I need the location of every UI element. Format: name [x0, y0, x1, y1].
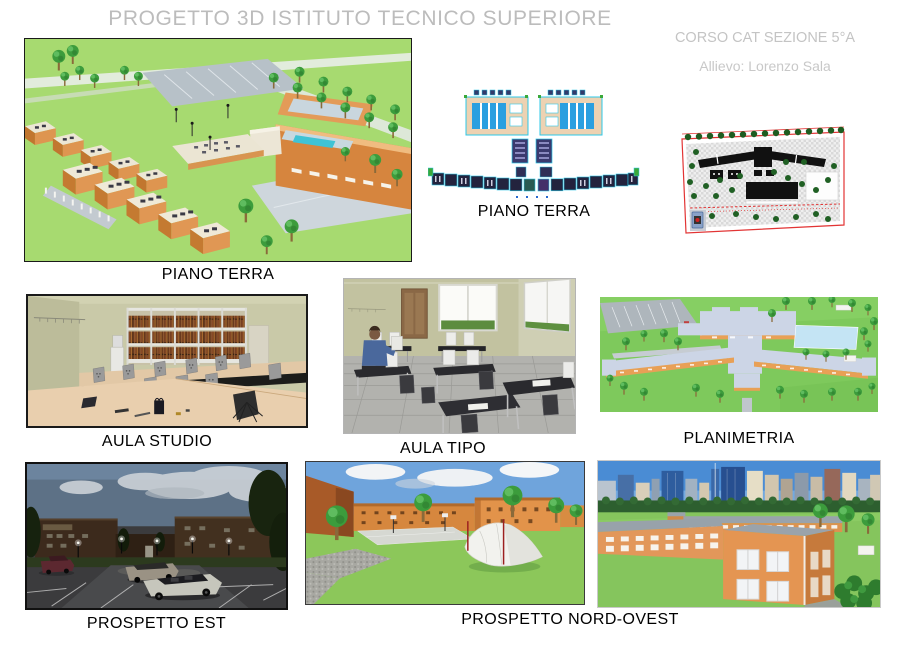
aula-studio-render [26, 294, 308, 428]
course-label: CORSO CAT SEZIONE 5°A [655, 30, 875, 46]
site-plan-drawing [676, 122, 850, 240]
site-plan [676, 122, 850, 240]
caption-piano-terra-cad: PIANO TERRA [428, 203, 640, 221]
prospetto-nord-ovest-courtyard-render [305, 461, 585, 605]
aula-studio-drawing [28, 296, 306, 426]
caption-aula-tipo: AULA TIPO [343, 440, 543, 458]
back-window [439, 285, 497, 330]
prospetto-est-drawing [27, 464, 286, 608]
caption-prospetto-est: PROSPETTO EST [25, 615, 288, 633]
prospetto-est-render [25, 462, 288, 610]
piano-terra-3d-render [24, 38, 412, 262]
piano-terra-3d-drawing [25, 39, 411, 261]
courtyard-drawing [306, 462, 584, 604]
caption-aula-studio: AULA STUDIO [26, 433, 288, 451]
page-title: PROGETTO 3D ISTITUTO TECNICO SUPERIORE [90, 7, 630, 31]
cad-plan-drawing [428, 84, 640, 202]
right-window [524, 279, 570, 332]
planimetria-render [600, 297, 878, 412]
sports-court [794, 325, 858, 349]
caption-prospetto-nord-ovest: PROSPETTO NORD-OVEST [440, 611, 700, 629]
aula-tipo-drawing [344, 279, 575, 433]
planimetria-drawing [600, 297, 878, 412]
caption-planimetria: PLANIMETRIA [600, 430, 878, 448]
building-drawing [598, 461, 880, 607]
bookshelf [127, 308, 247, 365]
aula-tipo-render [343, 278, 576, 434]
piano-terra-cad-plan [428, 84, 640, 202]
entrance-symbol [690, 210, 706, 231]
student-label: Allievo: Lorenzo Sala [655, 58, 875, 74]
prospetto-nord-ovest-building-render [597, 460, 881, 608]
